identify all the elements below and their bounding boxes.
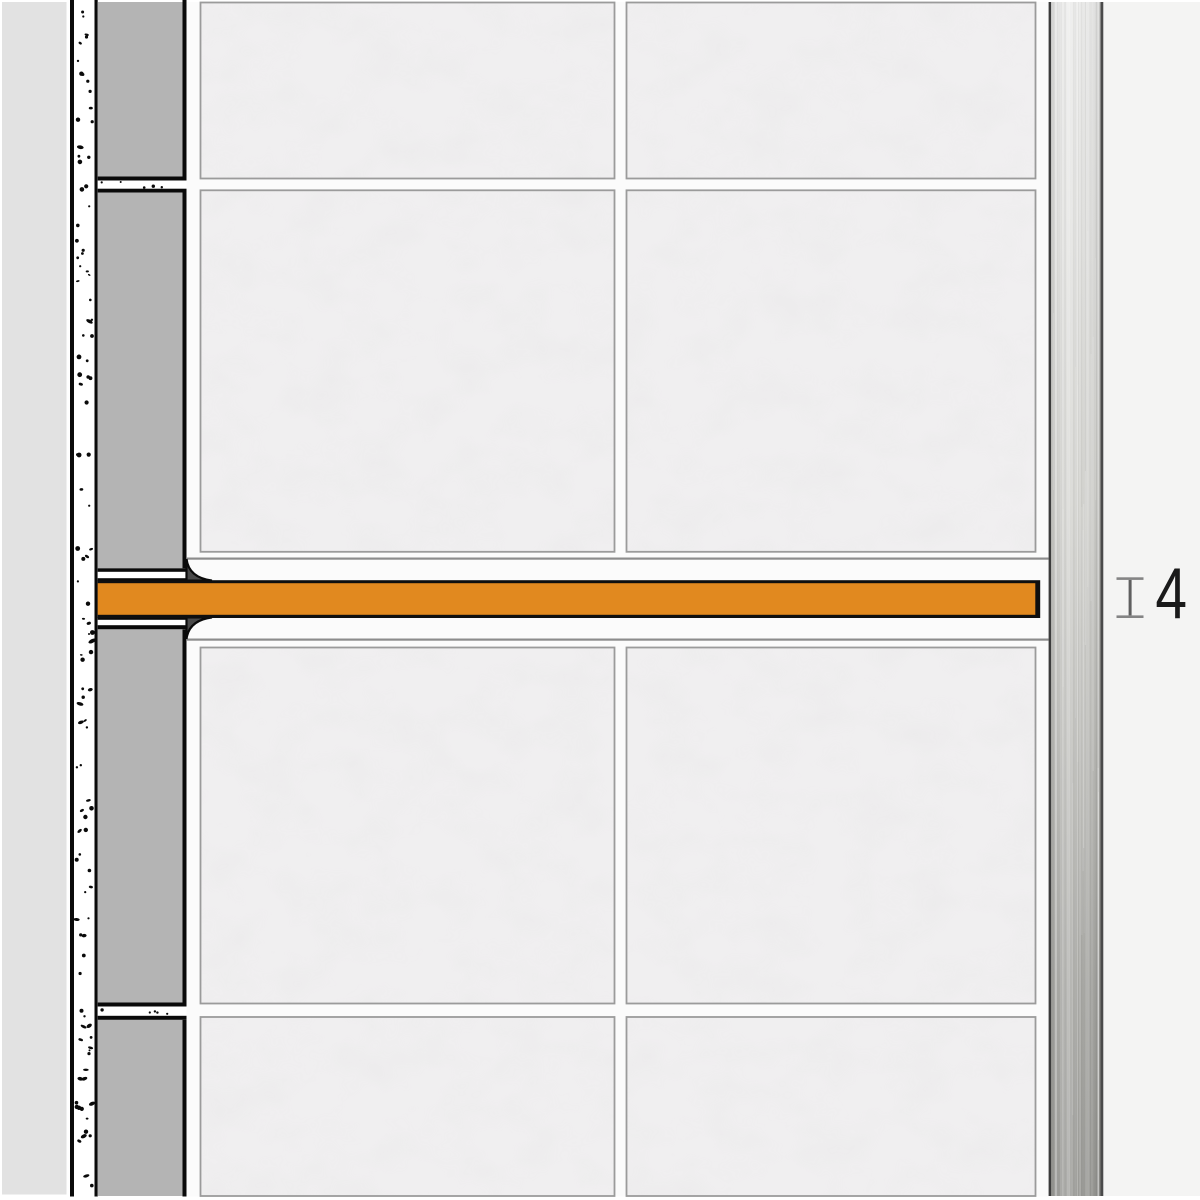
svg-text:4: 4	[1155, 553, 1187, 634]
